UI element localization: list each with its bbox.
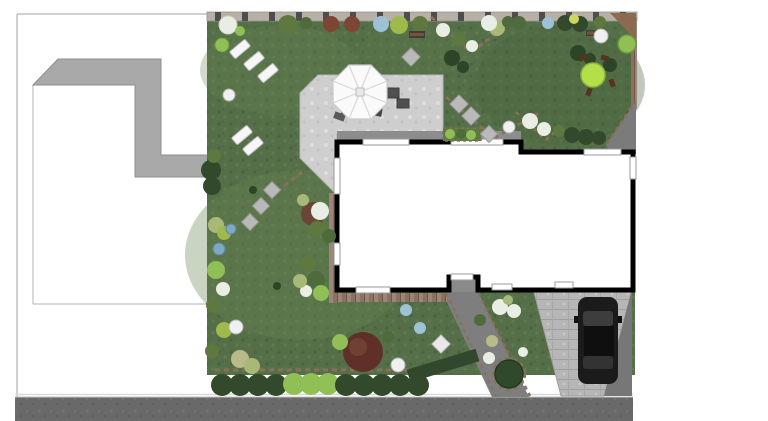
window-bottom-2: [492, 284, 512, 290]
plant-bush: [300, 256, 316, 272]
plant-white-flowers: [483, 352, 495, 364]
garden-sphere: [503, 121, 515, 133]
garden-sphere: [223, 89, 235, 101]
fence-post: [215, 12, 221, 21]
plant-white-flowers: [311, 202, 329, 220]
plant-blue-flowers: [373, 16, 389, 32]
garden-sphere: [229, 320, 243, 334]
fence-post: [458, 12, 464, 21]
window-bottom-3: [555, 282, 573, 288]
plant-white-flowers: [219, 16, 237, 34]
plant-bush: [382, 331, 394, 343]
brick-path-house-bottom: [337, 293, 447, 302]
plant-red-shrub: [323, 16, 339, 32]
plant-white-flowers: [216, 282, 230, 296]
topiary-bush: [495, 360, 523, 388]
plant-round-bush: [215, 38, 229, 52]
plant-bush: [512, 16, 526, 30]
fence-post: [242, 12, 248, 21]
window-left-1: [334, 158, 340, 194]
plant-pale-grass: [503, 295, 513, 305]
plant-yellow-green-bush: [390, 16, 408, 34]
plant-bush: [452, 32, 466, 46]
plant-bush: [300, 17, 312, 29]
plant-bush: [456, 129, 466, 139]
parasol-hub: [356, 88, 364, 96]
hedgerow-dark-bush: [407, 374, 429, 396]
car-roof: [584, 326, 614, 356]
plan-layers: [15, 12, 768, 421]
neighbor-building-footprint: [33, 59, 210, 177]
blue-rock: [226, 224, 236, 234]
car-mirror: [574, 316, 578, 323]
shade-tree: [457, 61, 469, 73]
plant-white-flowers: [518, 347, 528, 357]
plant-bush: [594, 16, 606, 28]
plant-white-flowers: [481, 15, 497, 31]
plant-bush: [474, 314, 486, 326]
plant-bush: [553, 125, 565, 137]
garden-bench-seat: [410, 33, 424, 36]
lawn-shrublet: [273, 282, 281, 290]
plan-drawing: [0, 0, 768, 421]
plant-pale-grass: [293, 274, 307, 288]
plant-white-flowers: [466, 40, 478, 52]
plant-blue-flowers: [542, 17, 554, 29]
plant-pale-grass: [297, 194, 309, 206]
plant-red-shrub: [344, 16, 360, 32]
plant-bush: [466, 130, 476, 140]
plant-white-flowers: [436, 23, 450, 37]
round-tree-light: [618, 35, 636, 53]
house-footprint: [337, 142, 633, 290]
plant-white-flowers: [507, 304, 521, 318]
lawn-shrublet: [249, 186, 257, 194]
plant-dark-bush: [564, 127, 580, 143]
street-road: [15, 397, 633, 421]
right-of-plot-mask: [635, 154, 768, 396]
car-windshield: [583, 311, 613, 326]
maple-tree-inner: [349, 338, 367, 356]
plant-dark-bush: [578, 129, 594, 145]
fence-post: [269, 12, 275, 21]
window-bottom-1: [356, 287, 390, 293]
round-dining-table: [581, 63, 605, 87]
plant-bush: [445, 129, 455, 139]
plant-pale-grass: [244, 358, 260, 374]
plant-tan-grass: [486, 335, 498, 347]
garden-sphere: [391, 358, 405, 372]
plant-light-bush: [332, 334, 348, 350]
plant-grass-tuft: [412, 16, 428, 32]
plant-light-bush: [313, 285, 329, 301]
car-rear-window: [583, 356, 613, 369]
car-mirror: [618, 316, 622, 323]
blue-rock: [213, 243, 225, 255]
entry-door: [451, 274, 473, 280]
plant-light-bush: [235, 26, 245, 36]
plant-bush: [278, 15, 298, 35]
plant-dark-bush: [592, 131, 606, 145]
window-top-right: [584, 149, 621, 155]
garden-sphere: [594, 29, 608, 43]
patio-lounge-sofa: [397, 99, 409, 108]
plant-light-bush: [207, 261, 225, 279]
plant-hedge-left: [201, 160, 221, 180]
plant-white-flowers: [522, 113, 538, 129]
plant-blue-flowers: [414, 322, 426, 334]
plant-yellow-flowers: [569, 14, 579, 24]
plant-bush: [207, 149, 221, 163]
plant-bush: [205, 344, 219, 358]
plant-blue-flowers: [400, 304, 412, 316]
garden-landscape-plan: [0, 0, 768, 421]
plant-hedge-left: [203, 177, 221, 195]
window-top-1: [363, 139, 409, 145]
plant-bush: [322, 229, 336, 243]
window-right-1: [630, 157, 636, 179]
plant-bush: [206, 297, 222, 313]
shade-tree: [444, 50, 460, 66]
plant-white-flowers: [537, 122, 551, 136]
window-left-2: [334, 243, 340, 265]
